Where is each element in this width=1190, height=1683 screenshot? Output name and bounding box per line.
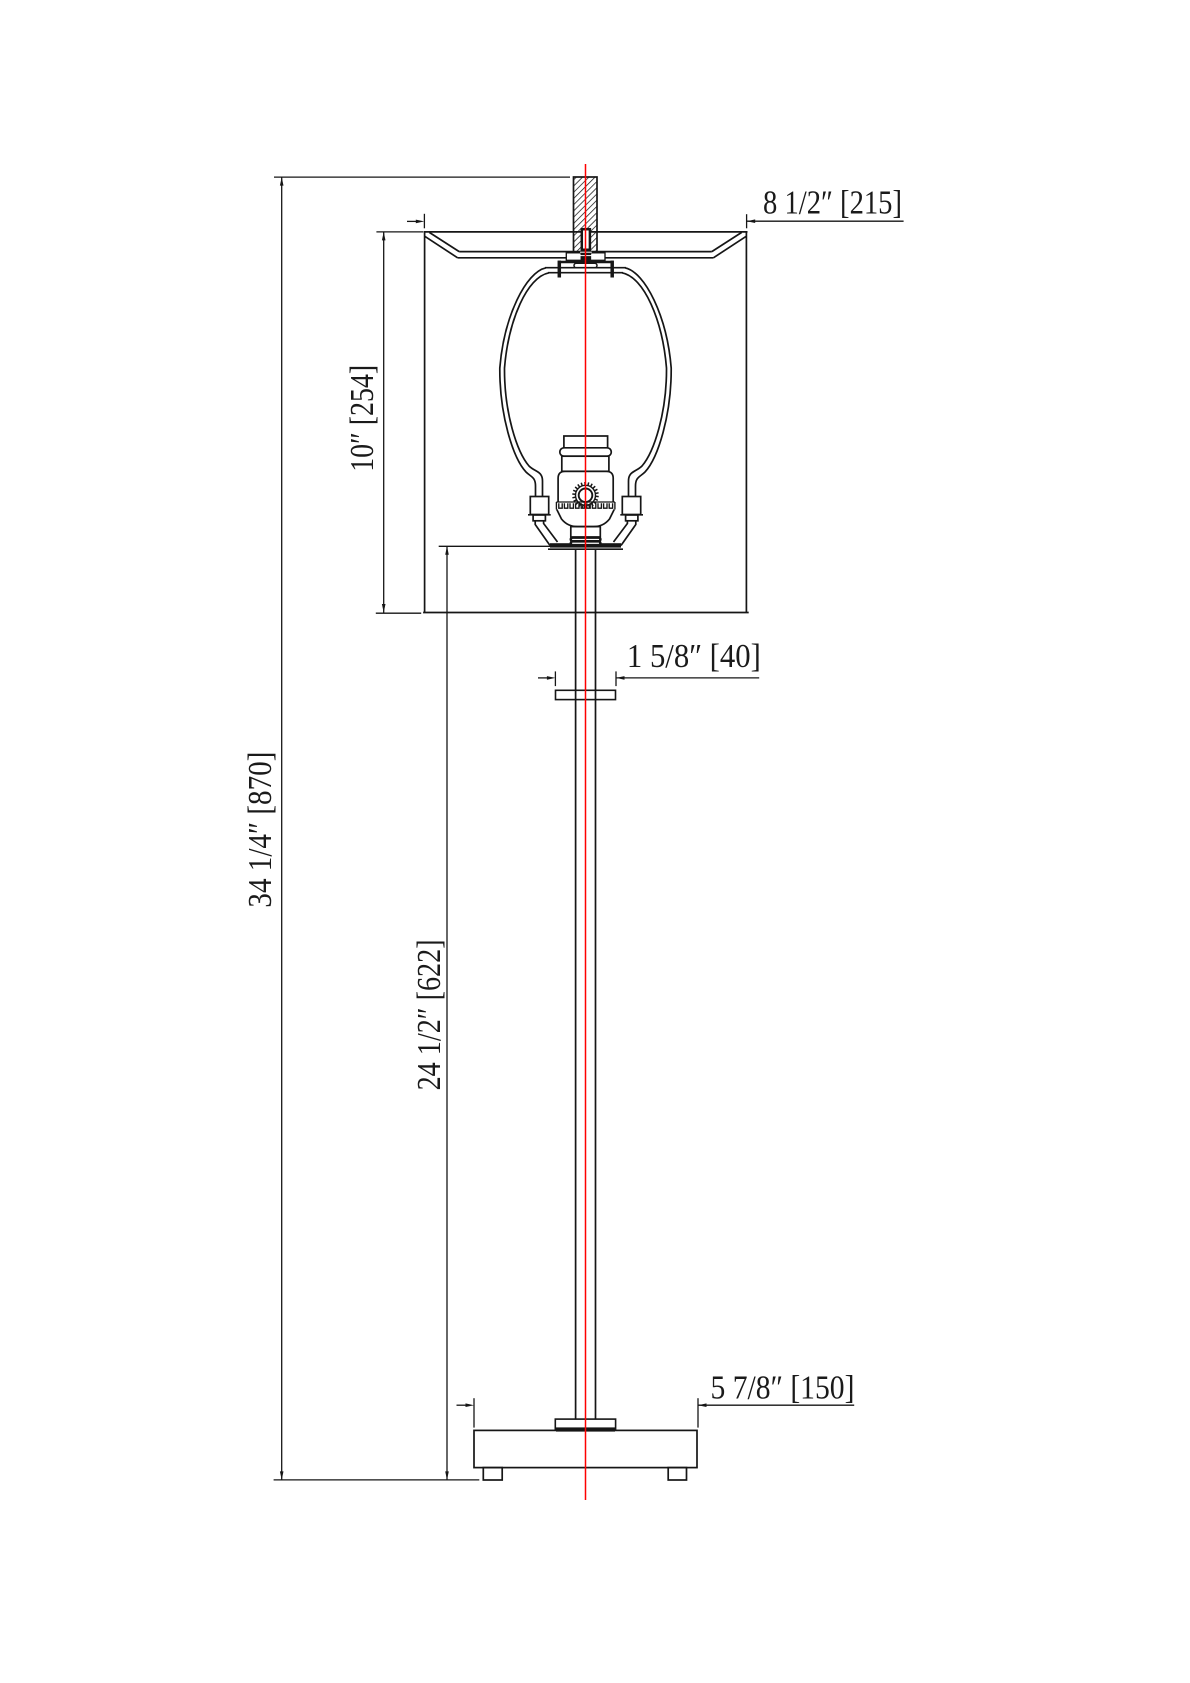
svg-text:5 7/8″ [150]: 5 7/8″ [150] (711, 1370, 855, 1407)
svg-text:10″ [254]: 10″ [254] (344, 365, 381, 472)
svg-text:8 1/2″ [215]: 8 1/2″ [215] (763, 185, 902, 222)
svg-text:34 1/4″ [870]: 34 1/4″ [870] (242, 752, 279, 908)
svg-text:24 1/2″ [622]: 24 1/2″ [622] (411, 939, 448, 1090)
svg-text:1 5/8″ [40]: 1 5/8″ [40] (627, 638, 761, 675)
